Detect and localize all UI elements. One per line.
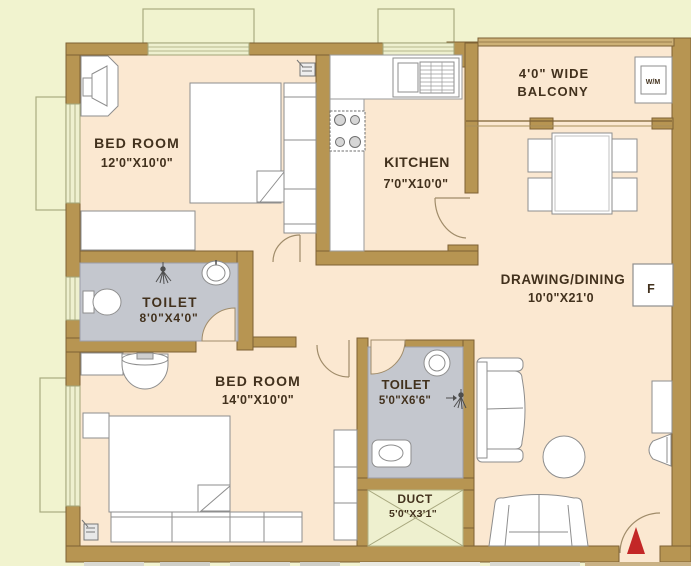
svg-text:DRAWING/DINING: DRAWING/DINING [501, 272, 626, 287]
svg-text:5'0"X6'6": 5'0"X6'6" [379, 395, 431, 407]
svg-text:4'0" WIDE: 4'0" WIDE [519, 66, 589, 81]
svg-text:W/M: W/M [646, 79, 661, 86]
svg-text:TOILET: TOILET [382, 377, 431, 392]
svg-text:BED ROOM: BED ROOM [94, 135, 180, 151]
svg-text:DUCT: DUCT [397, 492, 432, 506]
svg-text:BALCONY: BALCONY [517, 84, 588, 99]
svg-text:8'0"X4'0": 8'0"X4'0" [140, 311, 199, 325]
svg-text:BED ROOM: BED ROOM [215, 373, 301, 389]
svg-text:14'0"X10'0": 14'0"X10'0" [222, 393, 294, 407]
svg-text:F: F [647, 282, 655, 296]
svg-text:5'0"X3'1": 5'0"X3'1" [389, 508, 437, 520]
svg-text:TOILET: TOILET [142, 295, 198, 310]
svg-text:KITCHEN: KITCHEN [384, 154, 450, 170]
svg-text:10'0"X21'0: 10'0"X21'0 [528, 291, 594, 305]
svg-text:7'0"X10'0": 7'0"X10'0" [384, 177, 449, 191]
svg-text:12'0"X10'0": 12'0"X10'0" [101, 156, 173, 170]
